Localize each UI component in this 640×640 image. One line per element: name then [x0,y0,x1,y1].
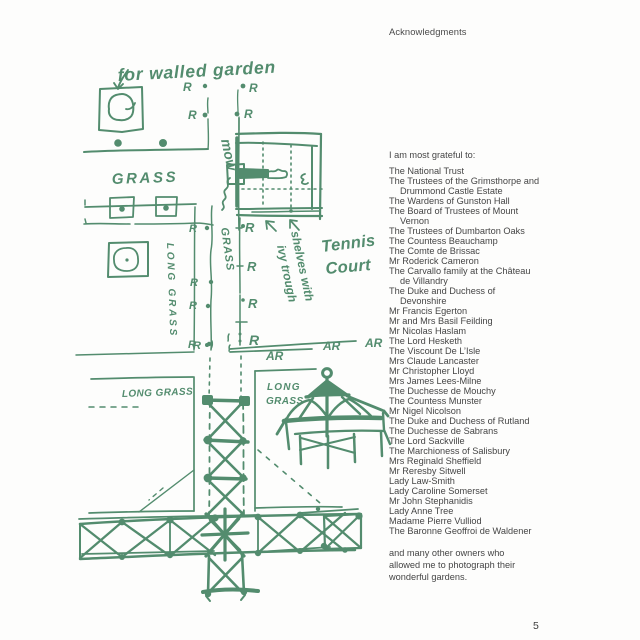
svg-text:AR: AR [265,349,284,363]
svg-text:GRASS: GRASS [112,169,179,188]
svg-text:LONG GRASS: LONG GRASS [164,243,178,339]
svg-text:GRASS: GRASS [218,227,236,272]
svg-text:R: R [247,259,257,274]
svg-text:LONG GRASS: LONG GRASS [122,387,194,400]
svg-text:R: R [249,81,258,95]
svg-text:R: R [183,80,192,94]
svg-text:R: R [193,340,201,352]
svg-text:Tennis: Tennis [320,231,376,255]
svg-text:GRASS: GRASS [266,396,304,407]
svg-text:AR: AR [322,339,341,353]
svg-text:AR: AR [364,336,383,350]
svg-text:LONG: LONG [267,382,301,393]
svg-text:R: R [188,108,197,122]
svg-text:R: R [189,300,197,312]
svg-text:R: R [248,296,258,311]
svg-text:R: R [189,223,197,235]
svg-text:R: R [190,277,198,289]
svg-text:R: R [245,220,255,235]
svg-text:R: R [249,332,260,348]
svg-text:R: R [244,107,253,121]
svg-text:Court: Court [325,256,373,278]
